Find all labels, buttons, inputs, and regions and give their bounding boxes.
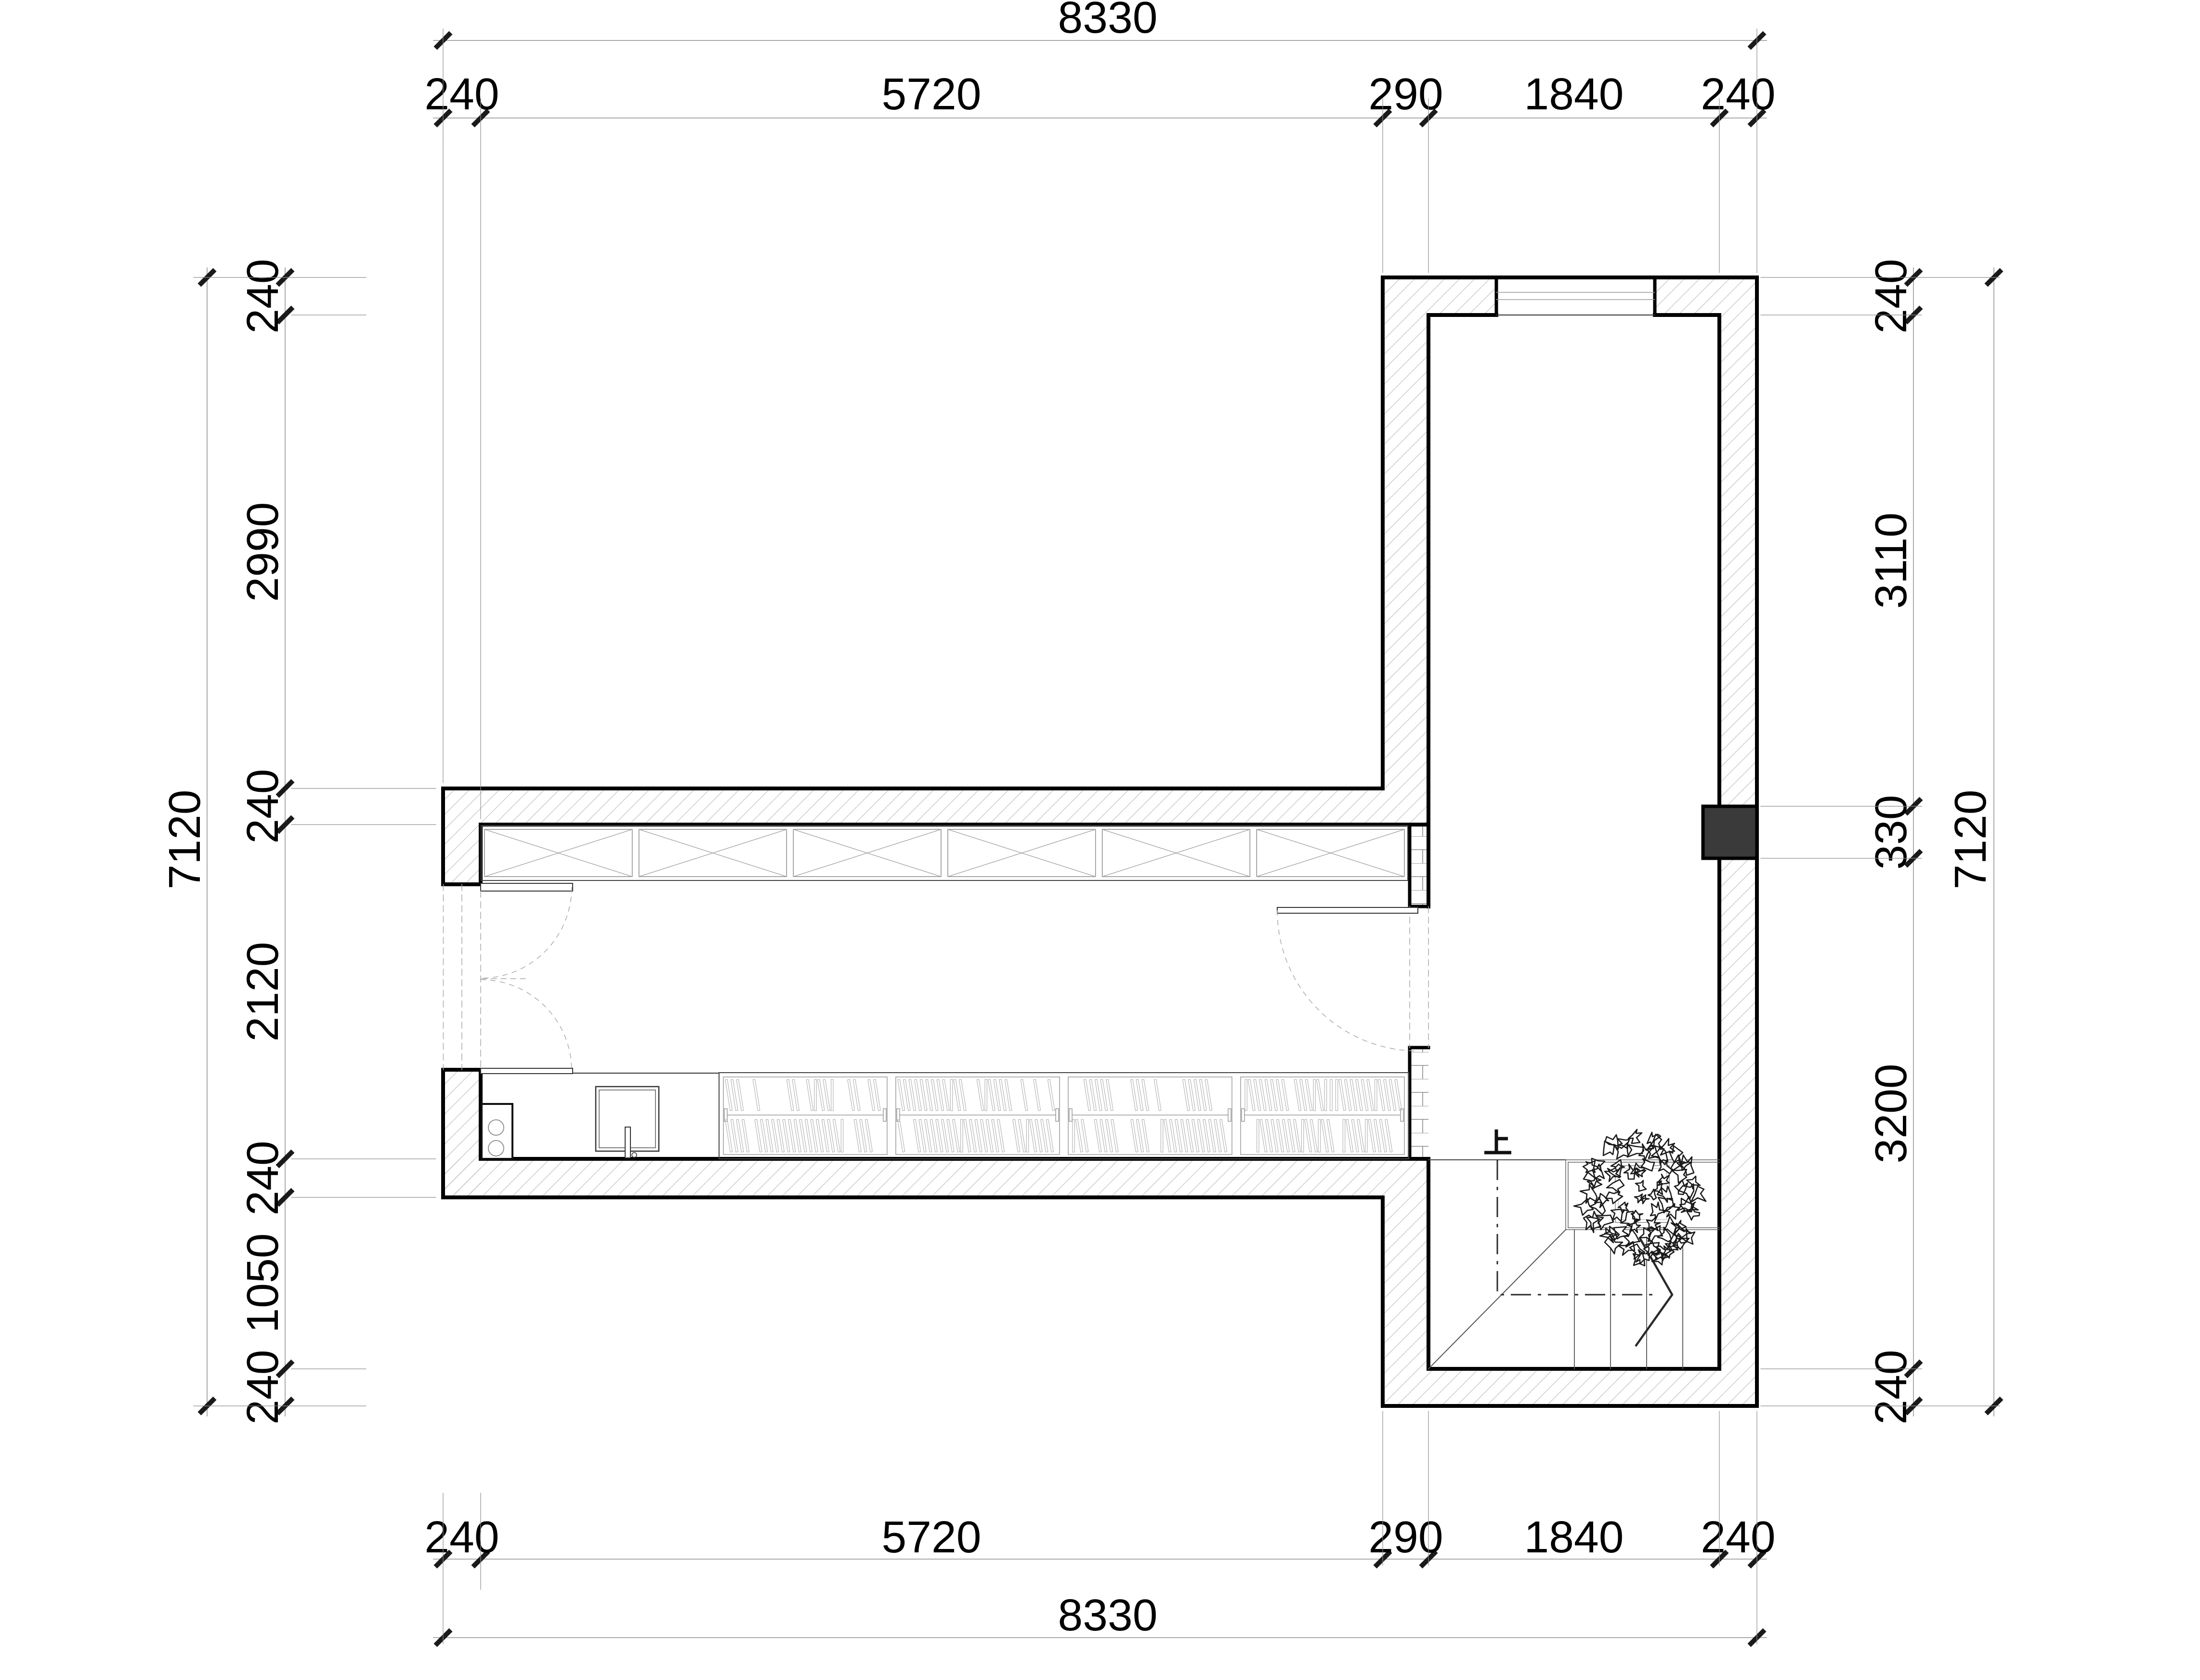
svg-text:290: 290 [1368,1512,1443,1562]
svg-text:5720: 5720 [882,69,982,119]
svg-text:5720: 5720 [882,1512,982,1562]
svg-text:1840: 1840 [1524,1512,1624,1562]
svg-text:240: 240 [237,259,288,333]
svg-text:240: 240 [1701,69,1775,119]
svg-text:2120: 2120 [237,942,288,1042]
svg-text:3110: 3110 [1866,512,1916,609]
svg-text:8330: 8330 [1058,1590,1158,1640]
svg-text:240: 240 [237,1350,288,1424]
svg-text:240: 240 [1701,1512,1775,1562]
svg-text:240: 240 [1866,259,1916,333]
svg-text:1050: 1050 [237,1234,288,1333]
svg-text:7120: 7120 [159,790,210,890]
svg-text:240: 240 [237,769,288,843]
svg-text:7120: 7120 [1945,790,1995,890]
svg-text:240: 240 [424,1512,499,1562]
svg-text:8330: 8330 [1058,0,1158,42]
svg-text:3200: 3200 [1866,1064,1916,1164]
svg-text:290: 290 [1368,69,1443,119]
svg-text:1840: 1840 [1524,69,1624,119]
svg-text:240: 240 [237,1141,288,1215]
svg-text:240: 240 [1866,1350,1916,1424]
svg-text:2990: 2990 [237,502,288,602]
svg-text:240: 240 [424,69,499,119]
